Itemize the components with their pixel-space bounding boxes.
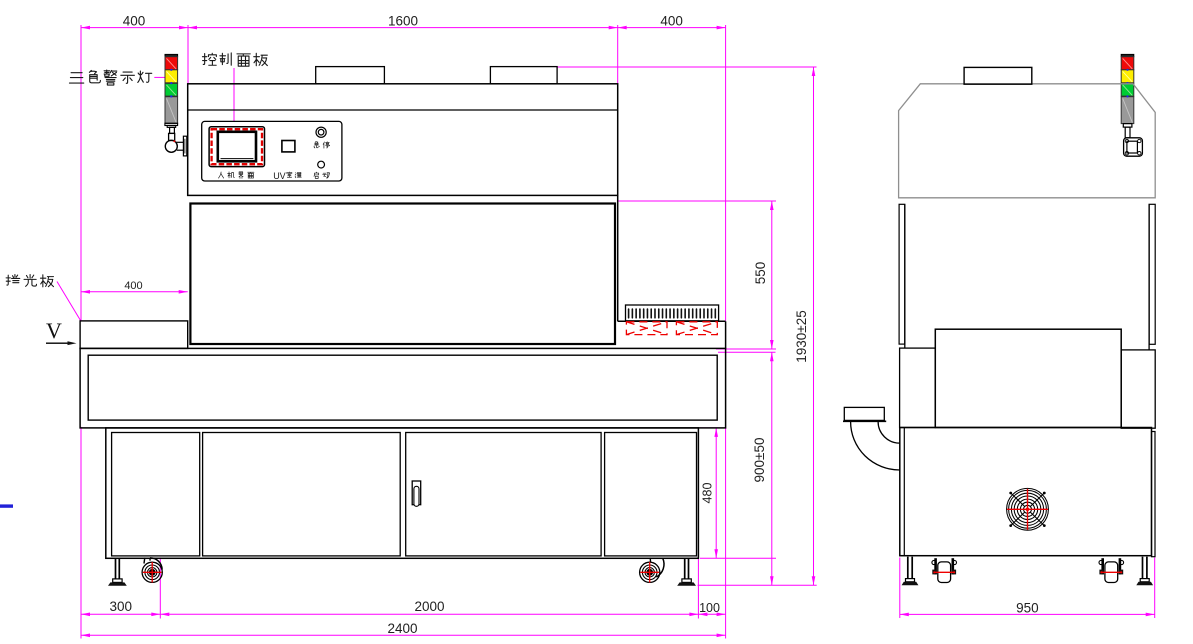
svg-text:950: 950 bbox=[1016, 600, 1039, 615]
svg-text:1930±25: 1930±25 bbox=[794, 310, 809, 362]
svg-text:900±50: 900±50 bbox=[752, 438, 767, 483]
svg-text:400: 400 bbox=[123, 14, 146, 29]
svg-text:2400: 2400 bbox=[387, 621, 417, 636]
svg-text:1600: 1600 bbox=[388, 14, 418, 29]
svg-text:400: 400 bbox=[124, 280, 142, 292]
svg-text:UV: UV bbox=[273, 171, 286, 181]
svg-text:400: 400 bbox=[660, 14, 683, 29]
svg-text:300: 300 bbox=[110, 599, 133, 614]
svg-text:V: V bbox=[46, 318, 62, 343]
svg-text:2000: 2000 bbox=[414, 599, 444, 614]
svg-text:550: 550 bbox=[753, 262, 768, 285]
svg-text:480: 480 bbox=[700, 483, 714, 504]
svg-text:100: 100 bbox=[699, 601, 720, 615]
